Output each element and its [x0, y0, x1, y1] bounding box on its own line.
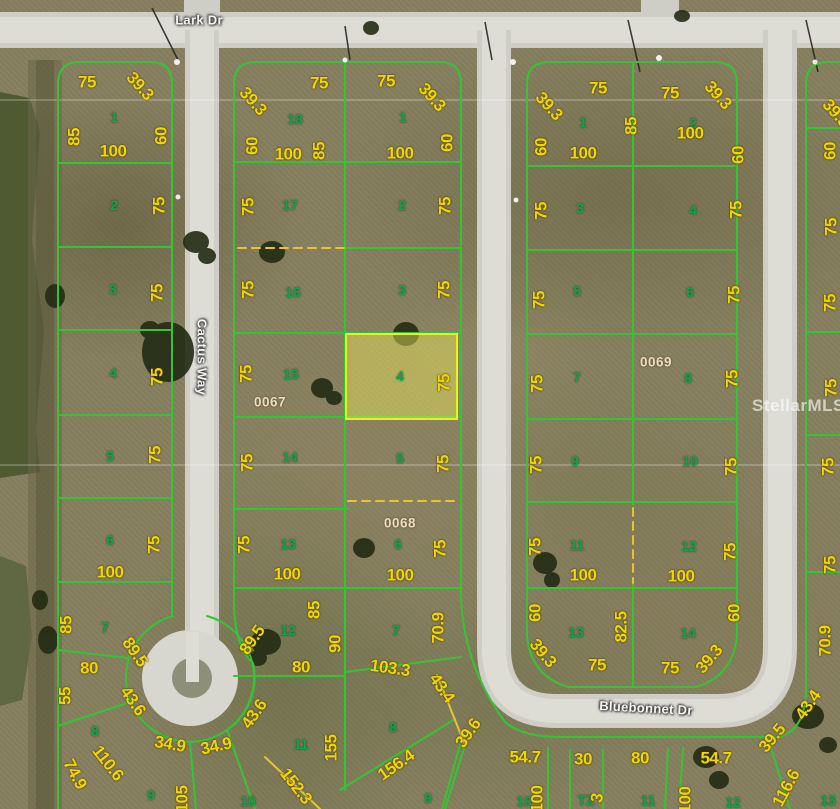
dimension-label: 34.9	[153, 733, 187, 755]
dimension-label: 75	[588, 657, 606, 674]
dimension-label: 75	[149, 284, 166, 302]
dimension-label: 110.6	[89, 742, 126, 783]
dimension-label: 100	[677, 125, 704, 142]
lot-number-label: 1	[399, 110, 407, 124]
block-id-label: 0067	[254, 395, 286, 409]
dimension-label: 75	[820, 458, 837, 476]
dimension-label: 82.5	[613, 611, 630, 642]
lot-number-label: 3	[576, 201, 584, 215]
dimension-label: 75	[529, 375, 546, 393]
dimension-label: 85	[306, 601, 323, 619]
dimension-label: 100	[529, 786, 546, 809]
lot-number-label: 6	[106, 533, 114, 547]
lot-number-label: 6	[394, 537, 402, 551]
lot-number-label: 15	[283, 367, 299, 381]
dimension-label: 75	[151, 197, 168, 215]
lot-number-label: 2	[398, 198, 406, 212]
dimension-label: 100	[668, 568, 695, 585]
dimension-label: 75	[527, 538, 544, 556]
dimension-label: 39.5	[755, 721, 788, 756]
lot-number-label: 13	[820, 793, 836, 807]
dimension-label: 75	[377, 73, 395, 90]
dimension-label: 75	[236, 536, 253, 554]
dimension-label: 100	[274, 566, 301, 583]
lot-number-label: 2	[110, 198, 118, 212]
dimension-label: 100	[387, 145, 414, 162]
dimension-label: 39.3	[532, 89, 565, 123]
lot-number-label: 14	[282, 450, 298, 464]
lot-number-label: 9	[424, 791, 432, 805]
lot-number-label: 6	[686, 285, 694, 299]
lot-number-label: 8	[389, 720, 397, 734]
dimension-label: 75	[661, 85, 679, 102]
dimension-label: 85	[623, 117, 640, 135]
watermark: StellarMLS	[752, 396, 840, 416]
lot-number-label: 12	[725, 795, 741, 809]
lot-number-label: 8	[91, 724, 99, 738]
street-name-label: Bluebonnet Dr	[599, 699, 693, 717]
dimension-label: 80	[292, 659, 310, 676]
dimension-label: 89.5	[236, 622, 268, 657]
block-id-label: 0068	[384, 516, 416, 530]
dimension-label: 100	[387, 567, 414, 584]
lot-number-label: 13	[568, 625, 584, 639]
dimension-label: 75	[661, 660, 679, 677]
lot-number-label: 10	[682, 454, 698, 468]
lot-number-label: 17	[282, 198, 298, 212]
dimension-label: 100	[275, 146, 302, 163]
dimension-label: 80	[80, 660, 98, 677]
dimension-label: 75	[531, 291, 548, 309]
lot-number-label: 4	[689, 203, 697, 217]
dimension-label: 60	[726, 604, 743, 622]
dimension-label: 39.3	[701, 78, 734, 112]
dimension-label: 54.7	[700, 750, 731, 767]
dimension-label: 75	[724, 370, 741, 388]
block-id-label: 0069	[640, 355, 672, 369]
dimension-label: 75	[78, 74, 96, 91]
dimension-label: 75	[726, 286, 743, 304]
dimension-label: 75	[533, 202, 550, 220]
dimension-label: 75	[240, 281, 257, 299]
dimension-label: 75	[240, 198, 257, 216]
dimension-label: 75	[435, 455, 452, 473]
dimension-label: 60	[730, 146, 747, 164]
lot-number-label: 8	[684, 371, 692, 385]
dimension-label: 89.5	[119, 634, 151, 669]
dimension-label: 60	[533, 138, 550, 156]
dimension-label: 75	[589, 80, 607, 97]
dimension-label: 75	[146, 536, 163, 554]
dimension-label: 75	[728, 201, 745, 219]
lot-number-label: 1	[110, 110, 118, 124]
dimension-label: 100	[570, 145, 597, 162]
dimension-label: 156.4	[375, 747, 418, 784]
dimension-label: 75	[310, 75, 328, 92]
dimension-label: 60	[244, 137, 261, 155]
dimension-label: 75	[823, 218, 840, 236]
dimension-label: 155	[323, 735, 340, 762]
dimension-label: 39.6	[452, 715, 484, 750]
dimension-label: 43.4	[426, 670, 458, 705]
dimension-label: 75	[436, 374, 453, 392]
dimension-label: 70.9	[817, 625, 834, 656]
dimension-label: 60	[527, 604, 544, 622]
lot-number-label: 5	[106, 449, 114, 463]
dimension-label: 75	[528, 456, 545, 474]
lot-number-label: 11	[294, 737, 309, 751]
lot-number-label: 5	[396, 451, 404, 465]
lot-number-label: 14	[680, 626, 696, 640]
lot-number-label: 7	[101, 620, 109, 634]
dimension-label: 85	[58, 616, 75, 634]
lot-number-label: 3	[109, 282, 117, 296]
lot-number-label: 3	[398, 283, 406, 297]
dimension-label: 54.7	[509, 749, 540, 766]
dimension-label: 85	[66, 128, 83, 146]
dimension-label: 34.9	[199, 734, 233, 757]
lot-number-label: 7	[392, 623, 400, 637]
dimension-label: 100	[677, 787, 694, 809]
dimension-label: 75	[822, 294, 839, 312]
lot-number-label: 4	[396, 369, 404, 383]
dimension-label: 39.3	[123, 69, 156, 103]
dimension-label: 75	[238, 365, 255, 383]
dimension-label: 75	[149, 368, 166, 386]
dimension-label: 39.3	[692, 642, 725, 677]
lot-number-label: 11	[641, 793, 656, 807]
dimension-label: 75	[437, 197, 454, 215]
dimension-label: 39.3	[526, 636, 559, 671]
lot-number-label: 13	[280, 537, 296, 551]
dimension-label: 75	[432, 540, 449, 558]
dimension-label: 75	[722, 543, 739, 561]
dimension-label: 30	[574, 751, 592, 768]
aerial-parcel-map: 1234567891018171615141312111234567812345…	[0, 0, 840, 809]
dimension-label: 70.9	[430, 612, 447, 643]
lot-number-label: 7	[573, 370, 581, 384]
dimension-label: 75	[823, 379, 840, 397]
lot-number-label: 18	[287, 112, 303, 126]
lot-number-label: 10	[240, 794, 256, 808]
dimension-label: 60	[439, 134, 456, 152]
dimension-label: 39.3	[819, 96, 840, 130]
street-name-label: Lark Dr	[175, 14, 223, 27]
dimension-label: 43.6	[238, 696, 270, 731]
dimension-label: 103.3	[369, 657, 411, 679]
dimension-label: 100	[100, 143, 127, 160]
dimension-label: 74.9	[60, 756, 90, 791]
map-labels-layer: 1234567891018171615141312111234567812345…	[0, 0, 840, 809]
dimension-label: 60	[153, 127, 170, 145]
dimension-label: 116.6	[769, 767, 802, 809]
street-name-label: Cactus Way	[196, 319, 209, 395]
dimension-label: 43.4	[792, 687, 824, 722]
dimension-label: 100	[97, 564, 124, 581]
dimension-label: 105	[174, 786, 191, 809]
lot-number-label: 9	[571, 454, 579, 468]
lot-number-label: 12	[681, 539, 697, 553]
dimension-label: 60	[822, 142, 839, 160]
lot-number-label: 12	[280, 623, 296, 637]
dimension-label: 75	[436, 281, 453, 299]
dimension-label: 75	[239, 454, 256, 472]
dimension-label: 75	[822, 556, 839, 574]
dimension-label: 152.3	[277, 765, 315, 807]
dimension-label: 75	[147, 446, 164, 464]
dimension-label: 43.6	[117, 683, 149, 718]
lot-number-label: 16	[285, 285, 301, 299]
lot-number-label: 1	[579, 115, 587, 129]
dimension-label: 55	[57, 687, 74, 705]
dimension-label: 80	[631, 750, 649, 767]
dimension-label: 85	[311, 142, 328, 160]
dimension-label: 100	[570, 567, 597, 584]
lot-number-label: 4	[109, 366, 117, 380]
lot-number-label: 9	[147, 788, 155, 802]
dimension-label: 90	[327, 635, 344, 653]
dimension-label: 75	[723, 458, 740, 476]
dimension-label: 39.3	[415, 80, 448, 114]
dimension-label: 39.3	[236, 84, 269, 118]
lot-number-label: 11	[570, 538, 585, 552]
lot-number-label: 5	[573, 284, 581, 298]
